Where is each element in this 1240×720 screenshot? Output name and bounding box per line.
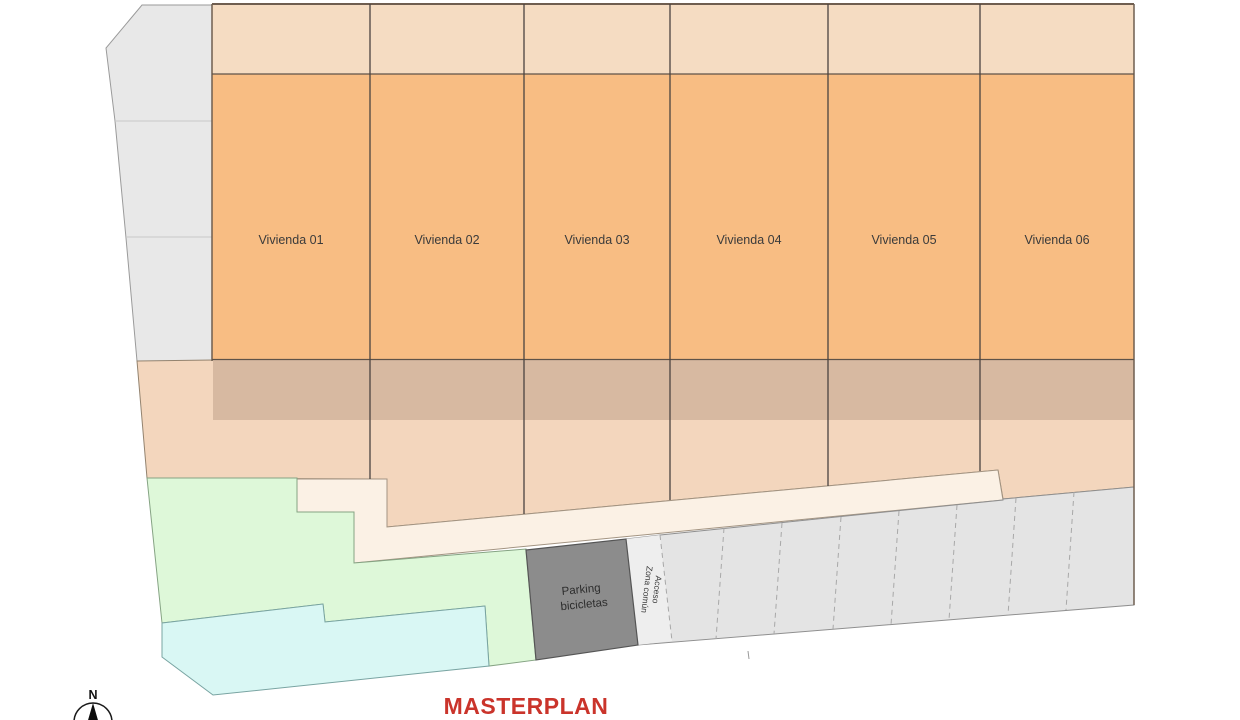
north-label: N [88,688,97,702]
unit-label-vivienda-03: Vivienda 03 [564,233,629,247]
terrace-band [213,359,1134,420]
page-title: MASTERPLAN [444,693,609,719]
front-yard-strip [212,4,1134,74]
masterplan-drawing: Vivienda 01 Vivienda 02 Vivienda 03 Vivi… [0,0,1240,720]
unit-label-vivienda-01: Vivienda 01 [258,233,323,247]
unit-label-vivienda-06: Vivienda 06 [1024,233,1089,247]
dwellings-block [212,74,1134,360]
masterplan-page: Vivienda 01 Vivienda 02 Vivienda 03 Vivi… [0,0,1240,720]
unit-label-vivienda-05: Vivienda 05 [871,233,936,247]
unit-label-vivienda-02: Vivienda 02 [414,233,479,247]
unit-label-vivienda-04: Vivienda 04 [716,233,781,247]
